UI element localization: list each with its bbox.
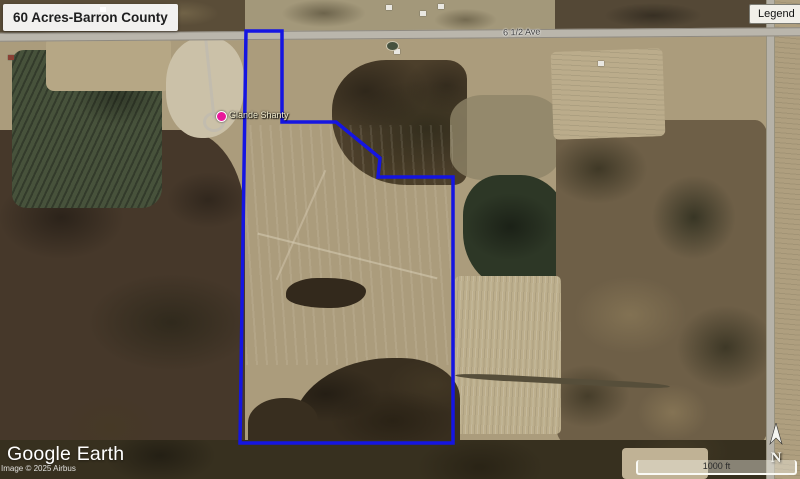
road-name-label: 6 1/2 Ave [503,27,541,38]
boundary-layer [0,0,800,479]
north-arrow-icon [763,423,789,447]
google-earth-logo: Google Earth [7,443,124,466]
property-boundary-polygon[interactable] [240,31,453,443]
scale-bar: 1000 ft [636,460,797,475]
map-viewport[interactable]: 6 1/2 Ave Glande Shanty 60 Acres-Barron … [0,0,800,479]
scale-label: 1000 ft [703,461,731,471]
placemark-pin-icon[interactable] [216,111,227,122]
legend-button[interactable]: Legend [749,4,800,24]
north-compass[interactable]: N [763,423,789,464]
imagery-attribution: Image © 2025 Airbus [1,464,76,473]
map-title: 60 Acres-Barron County [3,4,178,31]
placemark-label: Glande Shanty [229,110,289,120]
